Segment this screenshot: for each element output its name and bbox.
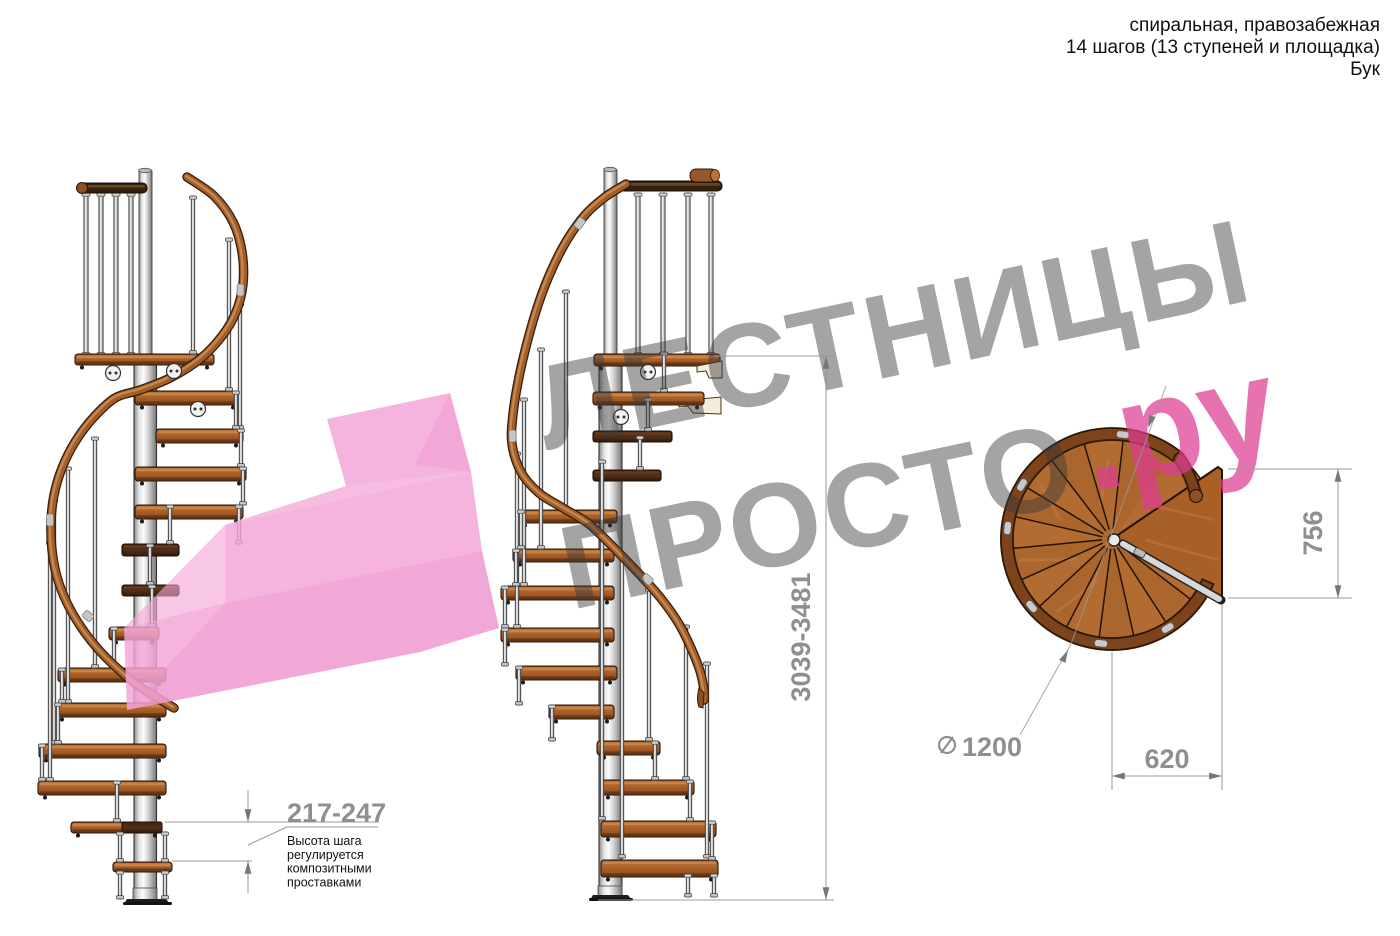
svg-text:1200: 1200 [962, 732, 1022, 762]
svg-text:спиральная, правозабежная14 ша: спиральная, правозабежная14 шагов (13 ст… [1066, 15, 1381, 80]
svg-text:Высота шагарегулируетсякомпози: Высота шагарегулируетсякомпозитнымипрост… [287, 834, 372, 889]
svg-text:3039-3481: 3039-3481 [786, 572, 816, 701]
svg-text:217-247: 217-247 [287, 798, 386, 828]
svg-text:756: 756 [1298, 510, 1328, 555]
svg-text:620: 620 [1144, 744, 1189, 774]
